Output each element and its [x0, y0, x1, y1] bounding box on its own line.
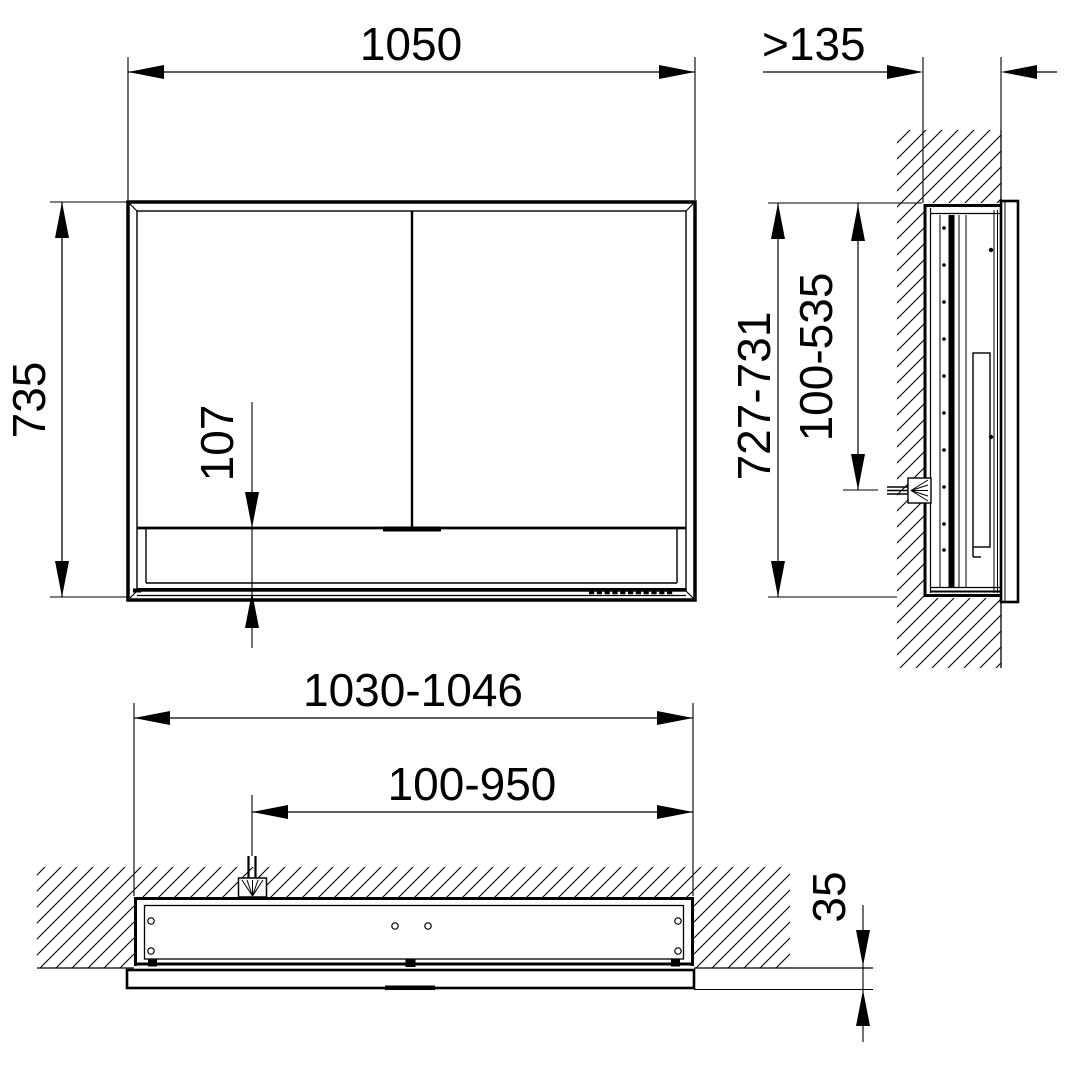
side-view: >135 727-731 100-535 — [728, 18, 1057, 668]
arrowhead — [657, 711, 693, 725]
arrowhead — [851, 454, 865, 490]
arrowhead — [55, 561, 69, 597]
arrowhead — [887, 65, 923, 79]
handle-strip-plan — [385, 986, 435, 991]
sensor-button — [667, 589, 672, 594]
mirror-front-plan — [127, 970, 694, 988]
plan-view: 1030-1046 100-950 35 — [37, 664, 873, 1042]
arrowhead — [128, 65, 164, 79]
dim-outlet-height: 100-535 — [790, 203, 878, 490]
arrowhead — [657, 805, 693, 819]
technical-drawing: 1050 735 107 — [0, 0, 1080, 1080]
dim-label-front-height: 735 — [3, 362, 55, 439]
hinge-point — [989, 435, 993, 439]
mirror-door-section — [1001, 201, 1018, 602]
led-light-channel — [949, 215, 955, 587]
interior-panel — [973, 353, 990, 547]
dim-label-front-width: 1050 — [360, 18, 462, 70]
dim-front-height: 735 — [3, 202, 128, 597]
sensor-button — [612, 589, 617, 594]
arrowhead — [252, 805, 288, 819]
door-handle-strip — [383, 527, 441, 532]
sensor-buttons — [589, 589, 672, 594]
dim-front-width: 1050 — [128, 18, 695, 200]
sensor-button — [644, 589, 649, 594]
dim-outlet-lateral: 100-950 — [252, 758, 693, 819]
dim-label-niche-depth: >135 — [762, 18, 866, 70]
arrowhead — [856, 990, 870, 1026]
dim-label-niche-width: 1030-1046 — [303, 664, 523, 716]
cabinet-body-plan — [134, 897, 694, 967]
dim-label-protrusion: 35 — [803, 871, 855, 922]
hinge-point — [989, 248, 993, 252]
front-view: 1050 735 107 — [3, 18, 695, 648]
arrowhead — [659, 65, 695, 79]
arrowhead — [55, 202, 69, 238]
dim-label-outlet-height: 100-535 — [790, 273, 842, 442]
sensor-button — [659, 589, 664, 594]
arrowhead — [771, 203, 785, 239]
brand-logo-mark — [133, 589, 141, 593]
sensor-button — [628, 589, 633, 594]
arrowhead — [851, 205, 865, 241]
arrowhead — [771, 561, 785, 597]
sensor-button — [597, 589, 602, 594]
dim-label-lower-panel: 107 — [191, 405, 243, 482]
arrowhead — [856, 930, 870, 966]
drawing-canvas: 1050 735 107 — [0, 0, 1080, 1080]
sensor-button — [636, 589, 641, 594]
sensor-button — [620, 589, 625, 594]
sensor-button — [589, 589, 594, 594]
cable-connection-side — [887, 478, 931, 503]
dim-label-outlet-lateral: 100-950 — [388, 758, 557, 810]
arrowhead — [134, 711, 170, 725]
dim-label-niche-height: 727-731 — [728, 312, 780, 481]
sensor-button — [605, 589, 610, 594]
sensor-button — [651, 589, 656, 594]
arrowhead — [1001, 65, 1037, 79]
